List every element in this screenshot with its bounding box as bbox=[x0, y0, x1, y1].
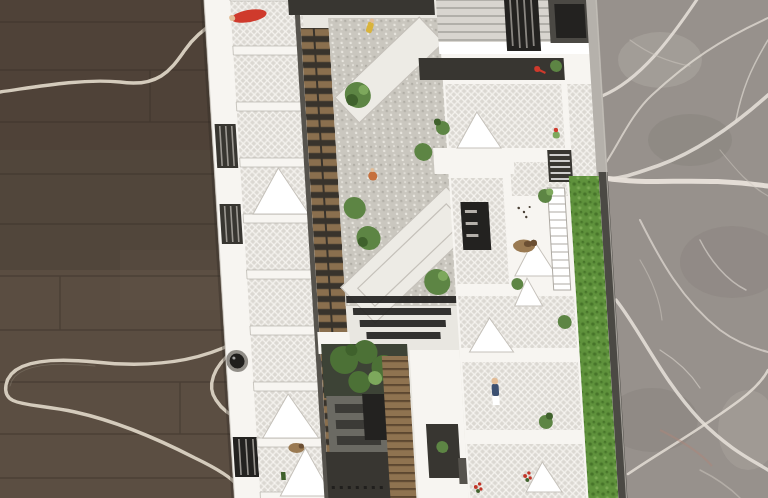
garden-courtyard bbox=[319, 340, 483, 498]
photo-stage bbox=[0, 0, 768, 498]
wing-dark-band bbox=[419, 58, 565, 80]
scene-photo bbox=[0, 0, 768, 498]
wing-dark-corridor bbox=[460, 202, 491, 250]
dark-roof-bottom bbox=[326, 452, 393, 498]
figure-green-bottle bbox=[281, 472, 286, 480]
top-dark-roof bbox=[287, 0, 435, 15]
building-model bbox=[203, 0, 628, 498]
dark-grille-object bbox=[503, 0, 541, 51]
